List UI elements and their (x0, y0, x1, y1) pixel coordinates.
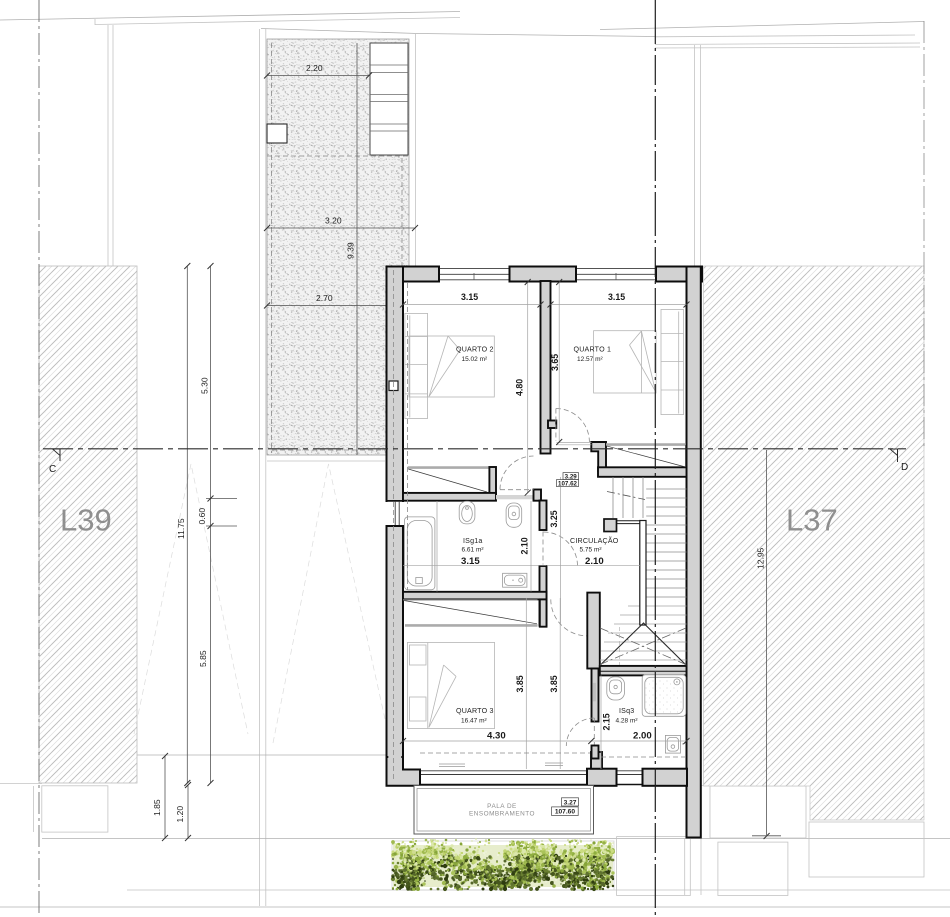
svg-text:3.65: 3.65 (550, 354, 560, 371)
svg-text:0.60: 0.60 (197, 508, 207, 525)
svg-text:CIRCULAÇÃO: CIRCULAÇÃO (570, 536, 619, 545)
svg-text:5.85: 5.85 (198, 650, 208, 667)
svg-text:PALA DE: PALA DE (487, 803, 517, 810)
svg-text:2.10: 2.10 (520, 537, 530, 554)
svg-text:16.47 m²: 16.47 m² (461, 718, 487, 725)
svg-text:2.20: 2.20 (306, 63, 323, 73)
svg-text:3.15: 3.15 (461, 556, 480, 567)
svg-text:2.15: 2.15 (602, 713, 612, 730)
svg-text:4.28 m²: 4.28 m² (616, 718, 639, 725)
svg-text:12.57 m²: 12.57 m² (577, 356, 603, 363)
svg-text:3.85: 3.85 (515, 675, 525, 692)
svg-text:2.10: 2.10 (585, 556, 604, 567)
svg-text:ISq3: ISq3 (619, 707, 634, 715)
svg-text:3.27: 3.27 (564, 799, 577, 806)
svg-text:3.29: 3.29 (565, 473, 578, 480)
svg-text:2.00: 2.00 (633, 731, 652, 742)
svg-text:3.20: 3.20 (325, 216, 342, 226)
svg-text:5.75 m²: 5.75 m² (580, 547, 603, 554)
svg-text:12.95: 12.95 (756, 547, 766, 569)
svg-text:1.85: 1.85 (152, 799, 162, 816)
svg-text:L39: L39 (60, 503, 112, 538)
svg-text:L37: L37 (786, 503, 838, 538)
svg-text:11.75: 11.75 (176, 518, 186, 539)
svg-text:1.20: 1.20 (175, 806, 185, 823)
svg-text:107.60: 107.60 (555, 809, 576, 816)
svg-text:3.15: 3.15 (461, 292, 478, 302)
svg-text:5.30: 5.30 (200, 377, 210, 394)
svg-text:3.25: 3.25 (549, 510, 559, 527)
svg-text:3.15: 3.15 (608, 292, 625, 302)
svg-text:2.70: 2.70 (316, 293, 333, 303)
svg-text:107.62: 107.62 (558, 480, 577, 487)
svg-text:3.85: 3.85 (549, 675, 559, 692)
svg-text:4.80: 4.80 (515, 379, 525, 396)
svg-text:9.39: 9.39 (346, 242, 356, 259)
svg-text:ISg1a: ISg1a (463, 537, 483, 545)
svg-text:15.02 m²: 15.02 m² (462, 356, 488, 363)
svg-text:ENSOMBRAMENTO: ENSOMBRAMENTO (469, 811, 535, 818)
svg-text:6.61 m²: 6.61 m² (462, 547, 485, 554)
svg-text:4.30: 4.30 (487, 731, 506, 742)
svg-text:D: D (901, 462, 908, 473)
svg-text:C: C (49, 464, 56, 475)
svg-text:QUARTO 2: QUARTO 2 (456, 346, 494, 354)
svg-text:QUARTO 3: QUARTO 3 (456, 707, 494, 715)
svg-text:QUARTO 1: QUARTO 1 (574, 346, 612, 354)
